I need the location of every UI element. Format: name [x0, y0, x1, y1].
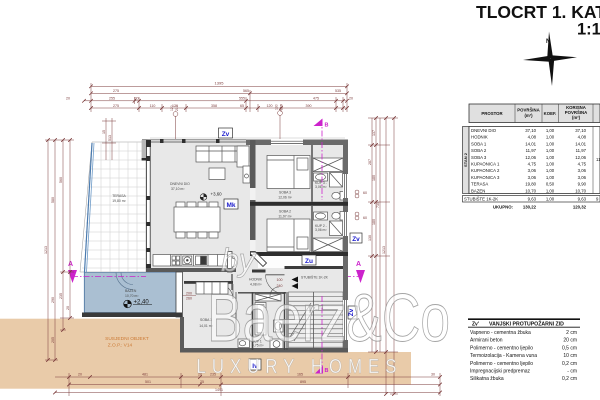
svg-text:12,06 m²: 12,06 m² — [278, 196, 292, 200]
svg-text:3,06: 3,06 — [528, 168, 537, 173]
svg-text:513: 513 — [108, 135, 112, 141]
svg-text:1491: 1491 — [215, 388, 223, 392]
svg-text:SOBA 2: SOBA 2 — [279, 210, 291, 214]
svg-text:20 cm: 20 cm — [563, 338, 577, 344]
svg-text:11,97 m²: 11,97 m² — [278, 215, 292, 219]
svg-text:0,50: 0,50 — [546, 182, 555, 187]
svg-text:BAZEN: BAZEN — [125, 289, 137, 293]
svg-text:LUXURY HOMES: LUXURY HOMES — [197, 355, 403, 378]
svg-text:30: 30 — [431, 373, 435, 377]
svg-text:37,10: 37,10 — [525, 128, 536, 133]
svg-text:10,70 m²: 10,70 m² — [125, 294, 139, 298]
svg-text:10,70: 10,70 — [575, 188, 586, 193]
svg-text:37,10 m²: 37,10 m² — [171, 187, 185, 191]
svg-text:SOBA 2: SOBA 2 — [471, 148, 487, 153]
svg-text:895: 895 — [300, 380, 306, 384]
svg-text:260: 260 — [186, 297, 192, 301]
svg-text:SOBA 3: SOBA 3 — [471, 155, 487, 160]
svg-text:275: 275 — [113, 89, 119, 93]
svg-text:Zu: Zu — [305, 258, 313, 265]
svg-text:0,2 cm: 0,2 cm — [562, 361, 577, 367]
svg-text:KOEF.: KOEF. — [544, 111, 557, 116]
svg-text:Zv: Zv — [222, 131, 230, 138]
svg-text:PROSTOR: PROSTOR — [481, 111, 503, 116]
svg-text:1213: 1213 — [44, 246, 48, 254]
svg-text:1395: 1395 — [215, 81, 225, 86]
svg-text:TLOCRT 1. KAT: TLOCRT 1. KAT — [476, 2, 600, 22]
svg-text:4,75: 4,75 — [528, 162, 537, 167]
svg-text:1,00: 1,00 — [546, 128, 555, 133]
svg-text:535: 535 — [335, 89, 341, 93]
svg-text:19,80: 19,80 — [525, 182, 536, 187]
svg-text:15: 15 — [102, 130, 106, 134]
svg-text:4,08: 4,08 — [578, 135, 587, 140]
svg-text:by: by — [221, 242, 257, 278]
svg-text:180: 180 — [372, 175, 376, 181]
svg-text:HODNIK: HODNIK — [471, 135, 488, 140]
svg-text:TERASA: TERASA — [112, 194, 126, 198]
svg-text:9,63: 9,63 — [578, 197, 587, 202]
svg-text:BAZEN: BAZEN — [471, 188, 485, 193]
svg-text:1,00: 1,00 — [546, 197, 555, 202]
svg-text:STAN 2: STAN 2 — [463, 152, 468, 167]
svg-text:A: A — [68, 261, 73, 268]
svg-text:STUBIŠTE 1K-2K: STUBIŠTE 1K-2K — [464, 197, 498, 202]
svg-text:(m²): (m²) — [524, 113, 533, 118]
svg-text:275: 275 — [113, 104, 119, 108]
svg-text:560: 560 — [59, 177, 63, 183]
svg-text:UKUPNO:: UKUPNO: — [493, 205, 514, 210]
svg-text:180: 180 — [372, 219, 376, 225]
svg-text:205: 205 — [51, 337, 55, 343]
svg-text:130,22: 130,22 — [523, 205, 537, 210]
svg-text:TERASA: TERASA — [471, 182, 488, 187]
svg-text:1,00: 1,00 — [546, 175, 555, 180]
svg-text:120,32: 120,32 — [573, 205, 587, 210]
svg-text:130: 130 — [368, 235, 372, 241]
svg-text:120: 120 — [170, 105, 174, 111]
svg-text:3,06 m²: 3,06 m² — [315, 185, 327, 189]
svg-text:4,75: 4,75 — [578, 162, 587, 167]
svg-text:1,00: 1,00 — [546, 148, 555, 153]
svg-text:200: 200 — [186, 292, 192, 296]
svg-text:555: 555 — [239, 97, 245, 101]
svg-text:Polimerno - cementno ljepilo: Polimerno - cementno ljepilo — [470, 345, 533, 351]
svg-text:12,06: 12,06 — [525, 155, 536, 160]
svg-text:10,70: 10,70 — [525, 188, 536, 193]
svg-text:Z.O.P.: V14: Z.O.P.: V14 — [108, 343, 133, 349]
svg-text:Polimerno - cementno ljepilo: Polimerno - cementno ljepilo — [470, 361, 533, 367]
svg-text:+3,60: +3,60 — [211, 192, 223, 197]
svg-text:137: 137 — [372, 130, 376, 136]
svg-text:1,00: 1,00 — [546, 168, 555, 173]
svg-text:10 cm: 10 cm — [563, 353, 577, 359]
svg-text:475: 475 — [313, 97, 319, 101]
svg-text:VANJSKI PROTUPOŽARNI ZID: VANJSKI PROTUPOŽARNI ZID — [489, 320, 564, 328]
svg-text:60: 60 — [363, 216, 367, 220]
svg-text:9,90: 9,90 — [578, 182, 587, 187]
svg-text:Silikatna žbuka: Silikatna žbuka — [470, 376, 504, 382]
svg-text:KUPAONICA 1: KUPAONICA 1 — [471, 162, 500, 167]
svg-text:565: 565 — [243, 89, 249, 93]
svg-text:1213: 1213 — [382, 246, 386, 254]
svg-text:120: 120 — [267, 104, 273, 108]
svg-text:255: 255 — [109, 97, 115, 101]
svg-text:12,06: 12,06 — [575, 155, 586, 160]
svg-text:390: 390 — [306, 104, 312, 108]
svg-text:1,00: 1,00 — [546, 188, 555, 193]
svg-text:0,2 cm: 0,2 cm — [562, 376, 577, 382]
svg-text:14,01: 14,01 — [575, 141, 586, 146]
svg-text:37,10: 37,10 — [575, 128, 586, 133]
svg-text:1,00: 1,00 — [546, 135, 555, 140]
svg-text:3,06: 3,06 — [578, 175, 587, 180]
svg-text:130: 130 — [275, 104, 279, 110]
svg-text:210: 210 — [175, 105, 179, 111]
svg-text:0,5 cm: 0,5 cm — [562, 345, 577, 351]
svg-text:DNEVNI DIO: DNEVNI DIO — [471, 128, 497, 133]
svg-text:290: 290 — [51, 297, 55, 303]
svg-text:11: 11 — [596, 157, 600, 162]
svg-text:3,06: 3,06 — [528, 175, 537, 180]
svg-text:Termoizolacija - Kamena vuna: Termoizolacija - Kamena vuna — [470, 353, 537, 359]
svg-text:60: 60 — [363, 191, 367, 195]
svg-text:3,06 m²: 3,06 m² — [315, 228, 327, 232]
svg-text:Impregnacijski predpremaz: Impregnacijski predpremaz — [470, 369, 531, 375]
svg-text:Baerz&Co: Baerz&Co — [207, 280, 450, 356]
svg-text:- cm: - cm — [567, 369, 577, 375]
svg-text:501: 501 — [145, 380, 151, 384]
svg-text:358: 358 — [211, 104, 217, 108]
svg-text:9,63: 9,63 — [528, 197, 537, 202]
svg-text:SOBA 3: SOBA 3 — [279, 191, 291, 195]
svg-text:3,06: 3,06 — [578, 168, 587, 173]
svg-text:235: 235 — [59, 293, 63, 299]
svg-text:2 cm: 2 cm — [566, 330, 577, 336]
svg-text:Zv': Zv' — [472, 322, 479, 328]
svg-text:DNEVNI DIO: DNEVNI DIO — [170, 182, 190, 186]
svg-text:1,00: 1,00 — [546, 162, 555, 167]
svg-text:Mk: Mk — [226, 202, 235, 209]
svg-text:19,80 m²: 19,80 m² — [112, 199, 126, 203]
svg-text:1:100: 1:100 — [577, 21, 600, 39]
svg-text:20: 20 — [66, 97, 70, 101]
svg-text:SUSJEDNI OBJEKT: SUSJEDNI OBJEKT — [105, 336, 149, 342]
svg-text:1,00: 1,00 — [546, 141, 555, 146]
svg-text:11,97: 11,97 — [526, 148, 537, 153]
svg-text:735: 735 — [376, 202, 380, 208]
svg-text:20: 20 — [66, 306, 70, 310]
svg-text:KUPAONICA 2: KUPAONICA 2 — [471, 168, 500, 173]
svg-text:20: 20 — [349, 97, 353, 101]
svg-text:11,97: 11,97 — [576, 148, 587, 153]
svg-text:14,01: 14,01 — [525, 141, 536, 146]
svg-text:(m²): (m²) — [572, 115, 581, 120]
svg-text:287: 287 — [368, 159, 372, 165]
svg-text:4,08: 4,08 — [528, 135, 537, 140]
svg-text:POVRŠINA: POVRŠINA — [517, 108, 539, 113]
svg-text:KUPAONICA 3: KUPAONICA 3 — [471, 175, 500, 180]
svg-text:1,00: 1,00 — [546, 155, 555, 160]
svg-text:A: A — [356, 261, 361, 268]
svg-text:Vapneno - cementna žbuka: Vapneno - cementna žbuka — [470, 330, 531, 336]
svg-text:Armirani beton: Armirani beton — [470, 338, 503, 344]
svg-text:65: 65 — [240, 104, 244, 108]
svg-text:580: 580 — [51, 197, 55, 203]
svg-text:STUBIŠTE 1K-2K: STUBIŠTE 1K-2K — [301, 275, 329, 280]
svg-text:481: 481 — [142, 373, 148, 377]
svg-text:B: B — [325, 123, 329, 129]
svg-text:210: 210 — [280, 104, 284, 110]
svg-text:Zv: Zv — [352, 236, 360, 243]
svg-text:20: 20 — [78, 373, 82, 377]
svg-text:SOBA 1: SOBA 1 — [471, 141, 487, 146]
svg-text:110: 110 — [150, 104, 156, 108]
